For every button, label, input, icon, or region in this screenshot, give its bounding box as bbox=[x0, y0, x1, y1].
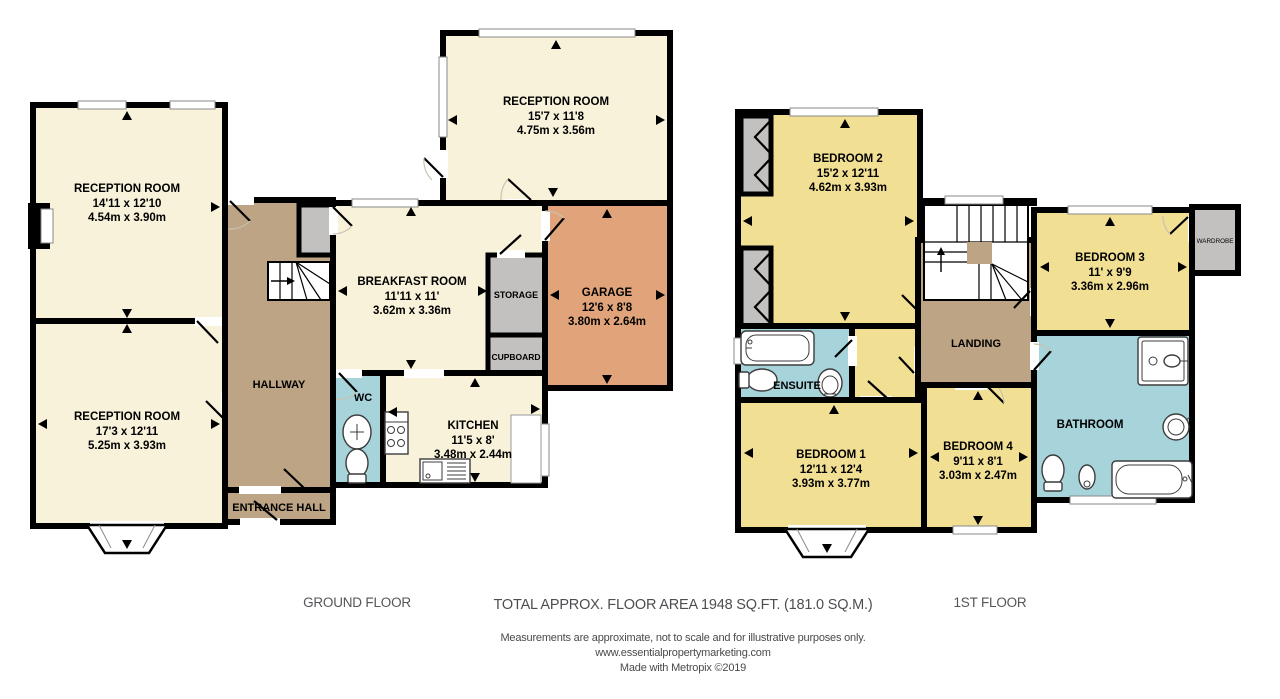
room-garage: GARAGE 12'6 x 8'8 3.80m x 2.64m bbox=[541, 203, 670, 388]
svg-text:RECEPTION ROOM: RECEPTION ROOM bbox=[503, 96, 609, 108]
bath-icon bbox=[741, 331, 814, 365]
window bbox=[352, 199, 418, 207]
svg-text:KITCHEN: KITCHEN bbox=[447, 420, 498, 432]
svg-text:15'2 x 12'11: 15'2 x 12'11 bbox=[817, 168, 880, 180]
first-floor-caption: 1ST FLOOR bbox=[954, 595, 1027, 610]
window bbox=[78, 101, 126, 109]
disclaimer-text: Measurements are approximate, not to sca… bbox=[500, 632, 865, 644]
svg-text:BEDROOM 2: BEDROOM 2 bbox=[813, 153, 883, 165]
bidet-icon bbox=[1079, 465, 1095, 489]
svg-text:CUPBOARD: CUPBOARD bbox=[491, 352, 540, 362]
svg-text:BREAKFAST ROOM: BREAKFAST ROOM bbox=[357, 276, 466, 288]
staircase-first bbox=[924, 205, 1028, 300]
svg-text:5.25m x 3.93m: 5.25m x 3.93m bbox=[88, 440, 166, 452]
toilet-icon bbox=[346, 449, 368, 483]
svg-text:12'6 x 8'8: 12'6 x 8'8 bbox=[582, 302, 633, 314]
stair-well bbox=[967, 242, 992, 264]
svg-text:ENTRANCE HALL: ENTRANCE HALL bbox=[232, 502, 326, 514]
room-reception-top-middle: RECEPTION ROOM 15'7 x 11'8 4.75m x 3.56m bbox=[424, 29, 670, 208]
sink-icon bbox=[343, 415, 371, 449]
svg-text:11'5 x 8': 11'5 x 8' bbox=[451, 435, 494, 447]
svg-text:RECEPTION ROOM: RECEPTION ROOM bbox=[74, 183, 180, 195]
window bbox=[439, 57, 447, 137]
svg-text:11'11 x 11': 11'11 x 11' bbox=[385, 291, 440, 303]
basin-icon bbox=[818, 369, 842, 397]
inner-landing-vestibule bbox=[852, 326, 923, 405]
svg-text:14'11 x 12'10: 14'11 x 12'10 bbox=[93, 198, 162, 210]
built-in-wardrobe bbox=[741, 116, 771, 194]
svg-text:STORAGE: STORAGE bbox=[494, 290, 538, 300]
svg-text:HALLWAY: HALLWAY bbox=[253, 379, 306, 391]
hall-closet bbox=[299, 205, 333, 255]
website-text: www.essentialpropertymarketing.com bbox=[594, 647, 770, 659]
svg-text:BEDROOM 3: BEDROOM 3 bbox=[1075, 252, 1145, 264]
svg-text:15'7 x 11'8: 15'7 x 11'8 bbox=[528, 111, 585, 123]
shower-icon bbox=[1138, 337, 1188, 385]
front-door-opening bbox=[240, 518, 280, 527]
room-kitchen: KITCHEN 11'5 x 8' 3.48m x 2.44m bbox=[383, 369, 549, 485]
svg-text:3.62m x 3.36m: 3.62m x 3.36m bbox=[373, 305, 451, 317]
credit-text: Made with Metropix ©2019 bbox=[620, 662, 746, 674]
room-bedroom-2: BEDROOM 2 15'2 x 12'11 4.62m x 3.93m bbox=[738, 108, 925, 326]
window bbox=[945, 196, 1003, 204]
svg-text:3.03m x 2.47m: 3.03m x 2.47m bbox=[939, 470, 1017, 482]
floorplan-canvas: RECEPTION ROOM 14'11 x 12'10 4.54m x 3.9… bbox=[0, 0, 1280, 699]
kitchen-counter bbox=[511, 415, 541, 483]
basin-icon bbox=[1163, 414, 1190, 440]
bay-window bbox=[785, 525, 869, 557]
first-floor-plan: BEDROOM 2 15'2 x 12'11 4.62m x 3.93m bbox=[734, 108, 1238, 557]
window bbox=[170, 101, 215, 109]
svg-text:WC: WC bbox=[354, 392, 372, 404]
window bbox=[790, 108, 878, 116]
svg-text:4.54m x 3.90m: 4.54m x 3.90m bbox=[88, 212, 166, 224]
room-wc: WC bbox=[333, 369, 383, 485]
floorplan-page: RECEPTION ROOM 14'11 x 12'10 4.54m x 3.9… bbox=[0, 0, 1280, 699]
room-bedroom-3: BEDROOM 3 11' x 9'9 3.36m x 2.96m bbox=[1034, 206, 1197, 333]
toilet-icon bbox=[739, 369, 777, 391]
svg-text:BEDROOM 4: BEDROOM 4 bbox=[943, 441, 1013, 453]
room-bedroom-1: BEDROOM 1 12'11 x 12'4 3.93m x 3.77m bbox=[738, 400, 924, 557]
ground-floor-caption: GROUND FLOOR bbox=[303, 595, 411, 610]
svg-text:9'11 x 8'1: 9'11 x 8'1 bbox=[953, 456, 1003, 468]
room-bedroom-4: BEDROOM 4 9'11 x 8'1 3.03m x 2.47m bbox=[924, 381, 1034, 534]
svg-text:LANDING: LANDING bbox=[951, 338, 1001, 350]
room-entrance-hall: ENTRANCE HALL bbox=[225, 486, 333, 527]
room-wardrobe: WARDROBE bbox=[1192, 207, 1238, 273]
room-ensuite: ENSUITE bbox=[734, 326, 857, 400]
footer: GROUND FLOOR TOTAL APPROX. FLOOR AREA 19… bbox=[303, 595, 1027, 674]
room-landing: LANDING bbox=[918, 196, 1039, 385]
svg-text:11' x 9'9: 11' x 9'9 bbox=[1088, 267, 1131, 279]
ground-floor-plan: RECEPTION ROOM 14'11 x 12'10 4.54m x 3.9… bbox=[28, 29, 670, 553]
kitchen-sink-icon bbox=[420, 459, 470, 483]
svg-text:4.62m x 3.93m: 4.62m x 3.93m bbox=[809, 182, 887, 194]
room-bathroom: BATHROOM bbox=[1030, 333, 1192, 504]
staircase-ground bbox=[268, 262, 330, 300]
bay-window bbox=[87, 521, 167, 553]
svg-text:BEDROOM 1: BEDROOM 1 bbox=[796, 449, 866, 461]
window bbox=[1068, 206, 1152, 214]
total-area-text: TOTAL APPROX. FLOOR AREA 1948 SQ.FT. (18… bbox=[494, 597, 873, 613]
toilet-icon bbox=[1042, 455, 1064, 491]
svg-text:12'11 x 12'4: 12'11 x 12'4 bbox=[800, 464, 863, 476]
svg-text:3.36m x 2.96m: 3.36m x 2.96m bbox=[1071, 281, 1149, 293]
window bbox=[541, 424, 549, 476]
svg-text:GARAGE: GARAGE bbox=[582, 287, 633, 299]
room-reception-top-left: RECEPTION ROOM 14'11 x 12'10 4.54m x 3.9… bbox=[28, 101, 225, 321]
window bbox=[953, 526, 997, 534]
room-hallway: HALLWAY bbox=[225, 196, 333, 495]
svg-text:3.93m x 3.77m: 3.93m x 3.77m bbox=[792, 478, 870, 490]
built-in-wardrobe bbox=[741, 248, 771, 326]
svg-text:3.80m x 2.64m: 3.80m x 2.64m bbox=[568, 316, 646, 328]
room-reception-bottom-left: RECEPTION ROOM 17'3 x 12'11 5.25m x 3.93… bbox=[33, 317, 230, 553]
bath-icon bbox=[1112, 461, 1192, 498]
svg-text:17'3 x 12'11: 17'3 x 12'11 bbox=[96, 426, 159, 438]
hob-icon bbox=[385, 412, 408, 454]
svg-text:RECEPTION ROOM: RECEPTION ROOM bbox=[74, 411, 180, 423]
svg-text:WARDROBE: WARDROBE bbox=[1197, 238, 1234, 245]
svg-text:ENSUITE: ENSUITE bbox=[773, 380, 821, 392]
window bbox=[479, 29, 635, 37]
svg-text:4.75m x 3.56m: 4.75m x 3.56m bbox=[517, 125, 595, 137]
svg-text:BATHROOM: BATHROOM bbox=[1057, 419, 1124, 431]
